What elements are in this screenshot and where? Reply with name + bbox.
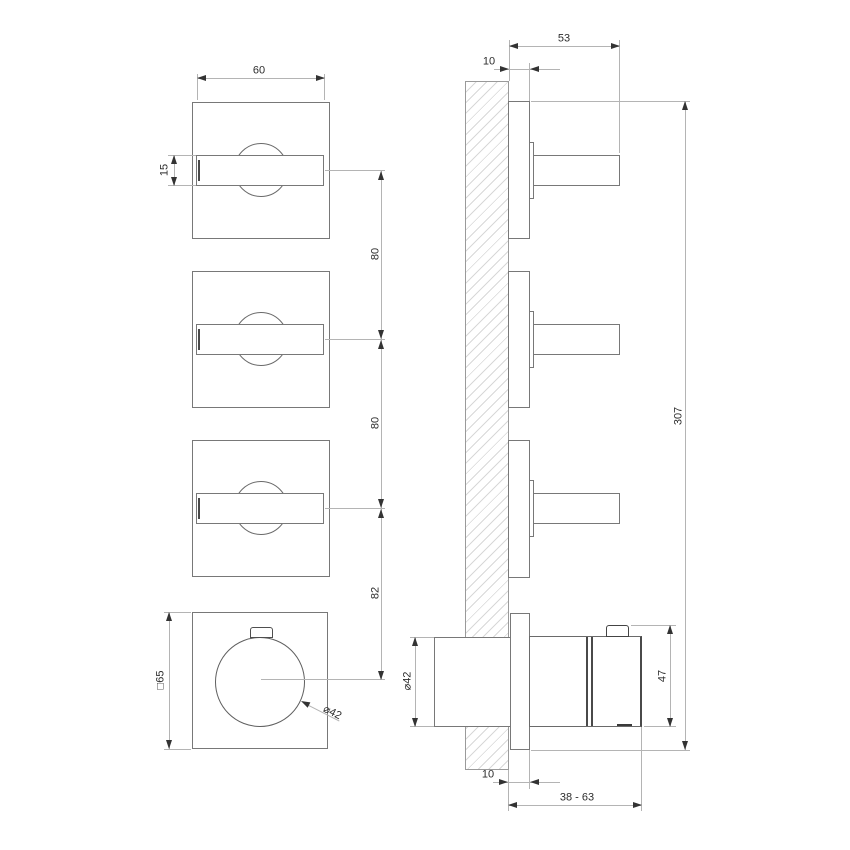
dim-label-lever-length: 60: [253, 66, 265, 77]
rough-in-cartridge: [434, 637, 511, 727]
arrow-down-icon: [378, 671, 384, 680]
handle-lever-side-3: [533, 493, 620, 524]
dim-label-knob-height: 47: [658, 670, 669, 682]
handle-plate-side-2: [508, 271, 530, 408]
arrow-up-icon: [378, 340, 384, 349]
dim-label-pitch-3: 82: [371, 587, 382, 599]
dim-label-install-depth: 38 - 63: [560, 793, 594, 804]
ext-line: [619, 40, 620, 153]
knob-grip-tab-front: [250, 627, 273, 638]
body-bottom-mark: [617, 724, 632, 726]
arrow-up-icon: [378, 171, 384, 180]
technical-drawing: 60 15 80 80 82 □65 ⌀42: [0, 0, 850, 850]
arrow-up-icon: [412, 637, 418, 646]
handle-plate-side-1: [508, 101, 530, 239]
arrow-up-icon: [378, 509, 384, 518]
dim-line-lever-length: [197, 78, 325, 79]
arrow-down-icon: [171, 177, 177, 186]
ext-line: [325, 339, 385, 340]
handle-lever-3: [196, 493, 324, 524]
arrow-right-icon: [633, 802, 642, 808]
arrow-up-icon: [171, 155, 177, 164]
handle-lever-2: [196, 324, 324, 355]
ext-line: [531, 750, 690, 751]
arrow-down-icon: [166, 740, 172, 749]
arrow-up-icon: [682, 101, 688, 110]
ext-line: [641, 727, 642, 811]
arrow-left-icon: [530, 779, 539, 785]
arrow-right-icon: [500, 66, 509, 72]
dim-line-lever-projection: [509, 46, 620, 47]
ext-line: [164, 749, 191, 750]
dim-label-lever-height: 15: [160, 164, 171, 176]
thermostat-knob: [215, 637, 305, 727]
knob-centerline: [261, 679, 385, 680]
dim-line-plate-square: [169, 612, 170, 749]
dim-label-pitch-2: 80: [371, 417, 382, 429]
arrow-down-icon: [682, 741, 688, 750]
arrow-right-icon: [316, 75, 325, 81]
dim-label-body-diameter: ⌀42: [403, 672, 414, 691]
lever-end-mark-3: [198, 498, 200, 519]
arrow-up-icon: [667, 625, 673, 634]
dim-label-pitch-1: 80: [371, 248, 382, 260]
arrow-down-icon: [378, 330, 384, 339]
dim-line-overall-height: [685, 101, 686, 750]
ext-line: [325, 508, 385, 509]
arrow-left-icon: [509, 43, 518, 49]
arrow-right-icon: [611, 43, 620, 49]
arrow-left-icon: [530, 66, 539, 72]
handle-plate-side-3: [508, 440, 530, 578]
ext-line: [531, 101, 690, 102]
arrow-right-icon: [499, 779, 508, 785]
arrow-down-icon: [378, 499, 384, 508]
arrow-left-icon: [197, 75, 206, 81]
handle-lever-side-2: [533, 324, 620, 355]
dim-line-body-diameter: [415, 637, 416, 727]
dim-line-install-depth: [508, 805, 642, 806]
body-seam-line-2: [591, 637, 593, 726]
arrow-left-icon: [508, 802, 517, 808]
dim-label-plate-square: □65: [156, 671, 167, 690]
ext-line: [325, 170, 385, 171]
dim-line-knob-height: [670, 625, 671, 727]
dim-label-lever-projection: 53: [558, 34, 570, 45]
knob-grip-tab-side: [606, 625, 629, 637]
arrow-up-icon: [166, 612, 172, 621]
thermostat-flange-side: [510, 613, 530, 750]
handle-lever-1: [196, 155, 324, 186]
body-seam-line-1: [586, 637, 588, 726]
dim-label-plate-offset-top: 10: [483, 57, 495, 68]
handle-lever-side-1: [533, 155, 620, 186]
dim-label-overall-height: 307: [674, 407, 685, 425]
dim-label-plate-offset-bottom: 10: [482, 770, 494, 781]
lever-end-mark-1: [198, 160, 200, 181]
arrow-down-icon: [412, 718, 418, 727]
lever-end-mark-2: [198, 329, 200, 350]
arrow-down-icon: [667, 718, 673, 727]
